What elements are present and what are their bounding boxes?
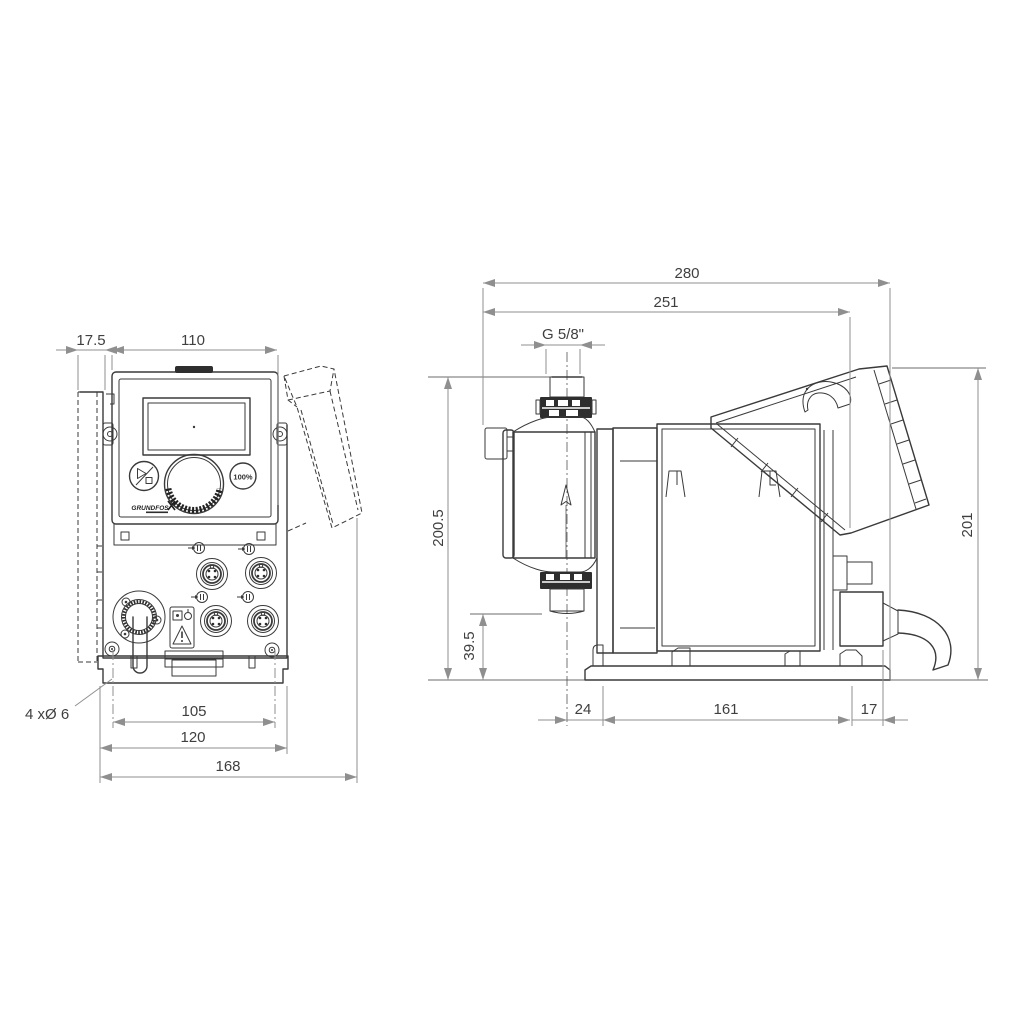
dim-161-label: 161 <box>713 701 738 718</box>
cable-gland <box>840 592 883 646</box>
control-panel: 100% GRUNDFOS <box>103 366 287 524</box>
power-cable <box>133 617 147 673</box>
discharge-fitting <box>513 377 596 432</box>
dim-39-5-label: 39.5 <box>461 631 478 660</box>
suction-valve <box>540 572 592 614</box>
dim-17-5-label: 17.5 <box>76 332 105 349</box>
hidden-dosing-head-outline <box>78 392 104 662</box>
svg-text:GRUNDFOS: GRUNDFOS <box>131 505 169 512</box>
rear-stud-thread <box>847 562 872 584</box>
suction-coupling-nut <box>540 572 592 589</box>
warning-triangle-icon <box>173 626 191 644</box>
level-input-icon <box>191 592 208 603</box>
dim-200-5-label: 200.5 <box>430 509 447 547</box>
klick-stop-foot-front <box>593 645 603 666</box>
left-ear-screw-icon <box>103 427 117 441</box>
front-view-dimensions: 17.5 110 105 120 168 4 xØ 6 <box>25 332 357 783</box>
full-speed-button-label: 100% <box>233 473 253 482</box>
full-speed-button[interactable]: 100% <box>230 463 256 489</box>
side-view-dimensions: 280 251 G 5/8" 200.5 39.5 201 24 161 <box>430 265 978 726</box>
mains-cable <box>898 610 951 670</box>
start-stop-icon <box>136 467 153 485</box>
dim-thread-label: G 5/8" <box>542 326 584 343</box>
open-hood-outline <box>284 366 362 531</box>
flow-direction-arrow <box>561 485 571 558</box>
dim-251-label: 251 <box>653 294 678 311</box>
click-wheel[interactable] <box>165 455 224 514</box>
panel-top-tab <box>175 366 213 373</box>
klick-stop-foot-rear <box>840 650 862 666</box>
front-view: 100% GRUNDFOS <box>25 332 362 783</box>
front-housing-section <box>613 428 657 653</box>
dimensional-drawing-page: 100% GRUNDFOS <box>0 0 1024 1024</box>
pulse-input-icon <box>188 543 205 554</box>
rear-connection <box>833 556 951 670</box>
dosing-head <box>503 430 597 572</box>
flange-knurl <box>124 602 155 633</box>
deaeration-knob <box>485 428 514 459</box>
head-flange-bracket <box>597 429 613 653</box>
panel-lower-rim <box>114 524 276 545</box>
side-view: 280 251 G 5/8" 200.5 39.5 201 24 161 <box>428 265 988 726</box>
mounting-plate-front <box>98 651 288 683</box>
housing-screw-icon <box>105 642 279 657</box>
motor-flange <box>113 591 165 673</box>
discharge-coupling-nut <box>536 397 596 418</box>
dim-201-label: 201 <box>959 512 976 537</box>
dim-17-label: 17 <box>861 701 878 718</box>
socket-icon <box>185 613 192 620</box>
mounting-holes-leader <box>75 679 112 706</box>
dim-105-label: 105 <box>181 703 206 720</box>
connector-field <box>188 543 279 637</box>
dim-24-label: 24 <box>575 701 592 718</box>
wall-claw-left <box>666 471 685 497</box>
dim-120-label: 120 <box>180 729 205 746</box>
grundfos-logo: GRUNDFOS <box>131 501 175 513</box>
mounting-plate-side <box>585 645 890 680</box>
display <box>143 398 250 455</box>
pump-housing <box>657 424 833 651</box>
start-stop-button[interactable] <box>130 462 159 491</box>
mounting-holes-label: 4 xØ 6 <box>25 706 69 723</box>
pump-dimensional-drawing: 100% GRUNDFOS <box>0 0 1024 1024</box>
output-relay-icon <box>237 592 254 603</box>
dim-110-label: 110 <box>181 332 205 349</box>
dim-280-label: 280 <box>674 265 699 282</box>
right-ear-screw-icon <box>273 427 287 441</box>
dim-168-label: 168 <box>215 758 240 775</box>
warning-label <box>170 607 194 648</box>
